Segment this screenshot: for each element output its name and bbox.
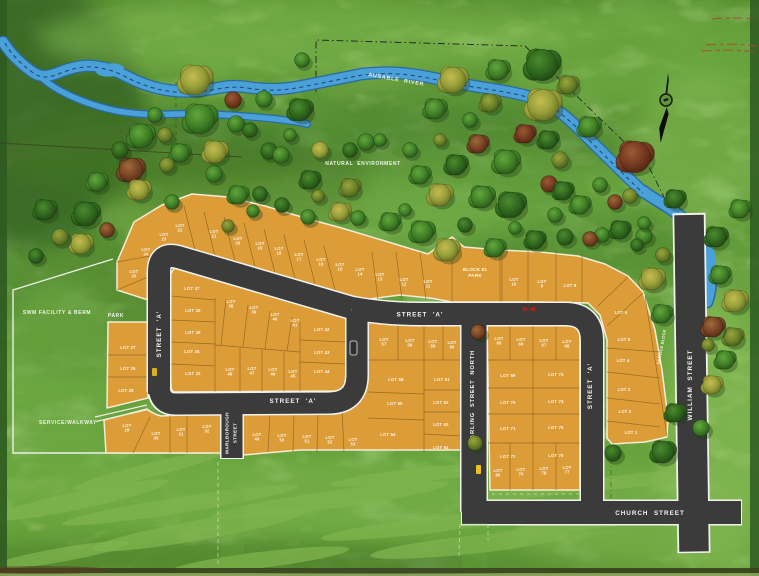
svg-text:LOT 1: LOT 1 [625,430,638,435]
svg-text:LOT 64: LOT 64 [433,445,449,450]
svg-text:LOT 43: LOT 43 [314,350,330,355]
svg-text:LOT 5: LOT 5 [618,337,631,342]
svg-text:LOT 71: LOT 71 [500,426,516,431]
svg-text:LOT 63: LOT 63 [433,422,449,427]
svg-text:NATURAL ENVIRONMENT: NATURAL ENVIRONMENT [325,161,401,167]
svg-text:LOT 26: LOT 26 [120,366,136,371]
svg-text:LOT 36: LOT 36 [185,308,201,313]
svg-text:STREET: STREET [233,423,238,444]
svg-text:LOT 6: LOT 6 [615,310,628,315]
svg-text:LOT 55: LOT 55 [387,401,403,406]
svg-text:LOT 58: LOT 58 [388,377,404,382]
svg-text:WILLIAM STREET: WILLIAM STREET [687,349,694,420]
svg-text:LOT 73: LOT 73 [548,372,564,377]
svg-text:LOT 37: LOT 37 [184,286,200,291]
svg-text:CHURCH STREET: CHURCH STREET [615,510,685,517]
svg-text:CARLING STREET NORTH: CARLING STREET NORTH [470,350,476,444]
svg-text:PARK: PARK [108,313,124,319]
svg-text:LOT 69: LOT 69 [500,373,516,378]
svg-text:LOT 4: LOT 4 [617,358,630,363]
svg-text:LOT 72: LOT 72 [500,454,516,459]
svg-text:LOT 44: LOT 44 [314,369,330,374]
svg-text:LOT 35: LOT 35 [185,330,201,335]
svg-text:LOT 27: LOT 27 [120,345,136,350]
svg-text:PARK: PARK [468,273,482,278]
svg-text:LOT 8: LOT 8 [564,283,577,288]
svg-text:LOT 74: LOT 74 [548,399,564,404]
svg-text:LOT 61: LOT 61 [434,377,450,382]
svg-text:LOT 62: LOT 62 [433,400,449,405]
svg-text:LOT 76: LOT 76 [548,453,564,458]
svg-text:LOT 70: LOT 70 [500,400,516,405]
svg-text:LOT 42: LOT 42 [314,327,330,332]
svg-text:BLOCK 81: BLOCK 81 [463,267,488,272]
svg-text:STREET 'A': STREET 'A' [587,363,594,409]
svg-text:LOT 28: LOT 28 [118,388,134,393]
svg-text:SERVICE/WALKWAY: SERVICE/WALKWAY [39,420,97,426]
svg-text:STREET 'A': STREET 'A' [270,398,317,405]
svg-text:STREET 'A': STREET 'A' [156,311,163,358]
svg-text:MARLBOROUGH: MARLBOROUGH [225,412,230,454]
svg-text:LOT 2: LOT 2 [619,409,632,414]
svg-text:STREET 'A': STREET 'A' [397,312,444,319]
svg-text:SWM FACILITY & BERM: SWM FACILITY & BERM [23,310,91,316]
svg-text:LOT 54: LOT 54 [380,432,396,437]
svg-text:LOT 75: LOT 75 [548,425,564,430]
svg-text:LOT 33: LOT 33 [185,371,201,376]
svg-text:LOT 3: LOT 3 [618,387,631,392]
svg-text:LOT 34: LOT 34 [184,349,200,354]
